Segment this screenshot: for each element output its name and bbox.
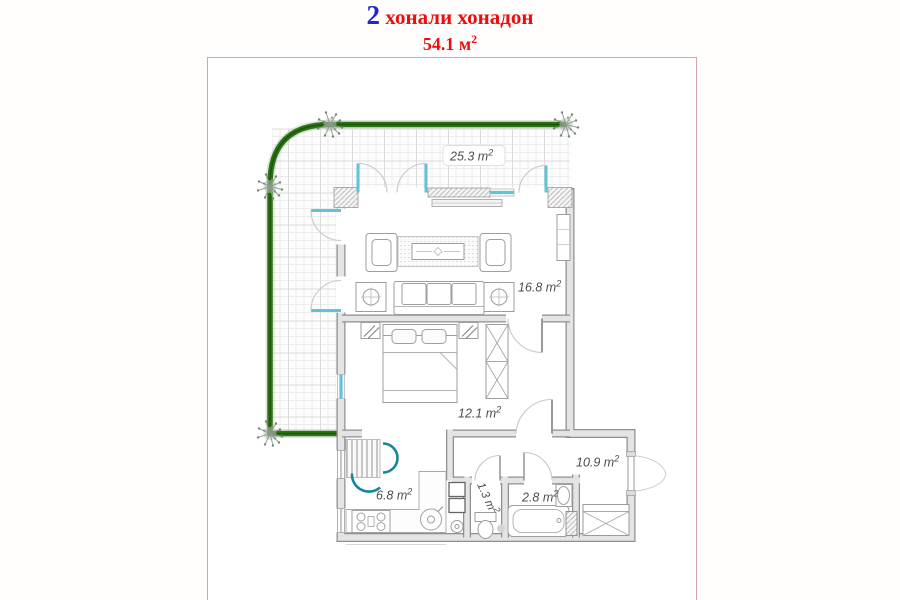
entrance-door-swing xyxy=(634,456,666,492)
kitchen-table xyxy=(346,440,380,478)
entrance-door-leaf xyxy=(628,454,634,494)
toilet-bowl xyxy=(478,521,493,539)
sofa-cushion xyxy=(427,284,451,305)
floor-drain xyxy=(497,525,505,533)
hallway-area-label: 10.9 m2 xyxy=(576,454,619,470)
column-hatched xyxy=(334,188,358,208)
total-area-value: 54.1 м xyxy=(423,34,471,54)
stove xyxy=(352,511,390,533)
sofa-cushion xyxy=(452,284,476,305)
pillow xyxy=(422,330,446,344)
floorplan-page: 2 хонали хонадон 54.1 м2 xyxy=(0,0,900,600)
hallway xyxy=(583,505,629,536)
bedroom-area-label: 12.1 m2 xyxy=(458,405,501,421)
boiler xyxy=(451,521,463,533)
nightstand xyxy=(361,323,380,339)
kitchen-area-label: 6.8 m2 xyxy=(376,487,412,503)
washer-hatched xyxy=(566,512,577,536)
column-hatched xyxy=(548,188,572,208)
room-count: 2 xyxy=(367,0,381,30)
plan-title: 2 хонали хонадон xyxy=(0,3,900,29)
plan-header: 2 хонали хонадон 54.1 м2 xyxy=(0,0,900,55)
total-area-sup: 2 xyxy=(471,32,477,46)
plan-frame: 25.3 m2 16.8 m2 12.1 m2 10.9 m2 6.8 m2 1… xyxy=(207,57,697,600)
nightstand xyxy=(459,323,478,339)
plan-title-text: хонали хонадон xyxy=(380,5,533,29)
total-area: 54.1 м2 xyxy=(0,29,900,55)
terrace-area-label: 25.3 m2 xyxy=(449,148,493,164)
window-sill-hatched xyxy=(428,188,490,197)
wardrobe xyxy=(486,325,508,399)
side-table xyxy=(484,283,514,312)
bathroom-area-label: 2.8 m2 xyxy=(521,489,558,505)
floorplan-drawing: 25.3 m2 16.8 m2 12.1 m2 10.9 m2 6.8 m2 1… xyxy=(208,58,696,600)
armchair-seat xyxy=(486,240,505,266)
side-table xyxy=(356,283,386,312)
wall-shelf xyxy=(557,215,570,261)
bathtub xyxy=(508,506,569,537)
pillow xyxy=(392,330,416,344)
bedroom xyxy=(361,323,508,403)
living-room-area-label: 16.8 m2 xyxy=(518,279,561,295)
sofa-cushion xyxy=(402,284,426,305)
armchair-seat xyxy=(372,240,391,266)
hall-wardrobe xyxy=(583,505,629,536)
